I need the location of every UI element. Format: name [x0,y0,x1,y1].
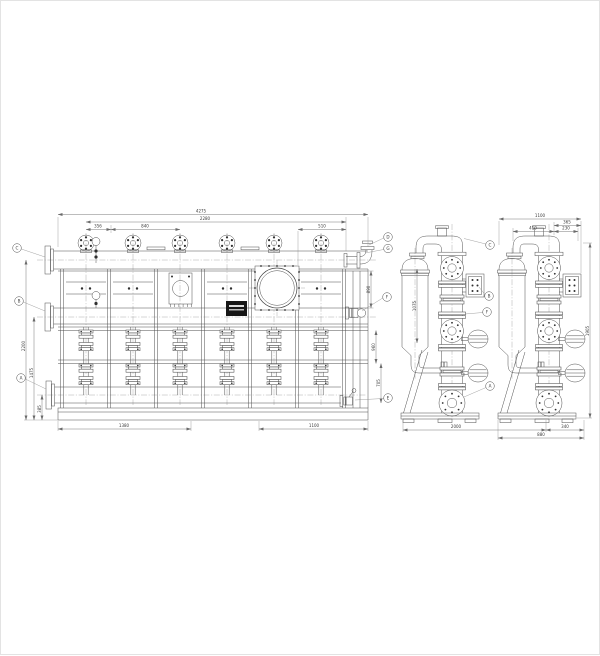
lifting-lug [147,247,165,250]
dim-left-lower: 385 [37,405,42,413]
dim-sv-width: 880 [537,432,545,437]
lifting-lug [241,247,259,250]
dim-vessel-height: 1075 [412,300,417,311]
dim-sv-small: 230 [562,226,570,231]
engineering-drawing: 4275 2280 356 840 510 2200 1475 385 890 … [1,1,600,656]
dim-sv-right: 365 [563,220,571,225]
drawing-sheet: 4275 2280 356 840 510 2200 1475 385 890 … [0,0,600,655]
dim-sv-height: 1905 [585,325,590,336]
outlet-elbow [344,241,374,268]
balloon-g: G [386,246,389,251]
dim-right-mid: 960 [371,343,376,351]
dim-right-upper: 890 [366,285,371,293]
balloon-d: D [386,235,389,240]
manway [254,265,300,311]
dim-seg1: 356 [94,224,102,229]
dim-nozzle-span: 2280 [200,216,211,221]
dim-left-mid: 1475 [29,367,34,378]
drain-valve [346,307,366,319]
balloon-b: B [18,299,21,304]
balloon-sv-b: B [488,294,491,299]
front-dimensions-bottom: 1380 1100 [58,421,368,431]
dim-sv-overall: 1100 [535,213,546,218]
front-view: 4275 2280 356 840 510 2200 1475 385 890 … [13,209,393,432]
pressure-gauge [92,238,100,264]
nameplate [226,301,247,316]
top-nozzles [78,235,329,253]
side-view-right: 1100 365 410 230 1905 2000 340 880 [403,213,592,440]
dim-bottom-right: 1100 [309,423,320,428]
access-panel [169,273,192,307]
valve-manifold [79,327,328,395]
dim-seg3: 510 [318,224,326,229]
pressure-gauge [92,292,100,309]
balloon-c: C [16,246,19,251]
balloon-a: A [20,376,23,381]
dim-right-lower: 705 [376,379,381,387]
vent-valve [340,389,356,407]
balloon-sv-a: A [489,384,492,389]
side-view-left: 1075 C B F A [401,224,495,423]
balloon-sv-c: C [489,243,492,248]
dim-left-overall: 2200 [21,340,26,351]
dim-overall-width: 4275 [196,209,207,214]
front-dimensions-left: 2200 1475 385 [21,260,58,420]
balloon-e: E [387,396,390,401]
dim-bottom-left: 1380 [119,423,130,428]
side-bottom-dimensions: 2000 340 880 [403,420,584,440]
dim-seg2: 840 [141,224,149,229]
front-balloons: C B A D G F E [13,233,393,403]
dim-sv-pitch: 2000 [451,424,462,429]
dim-sv-left: 410 [529,226,537,231]
dim-sv-offset: 340 [561,424,569,429]
